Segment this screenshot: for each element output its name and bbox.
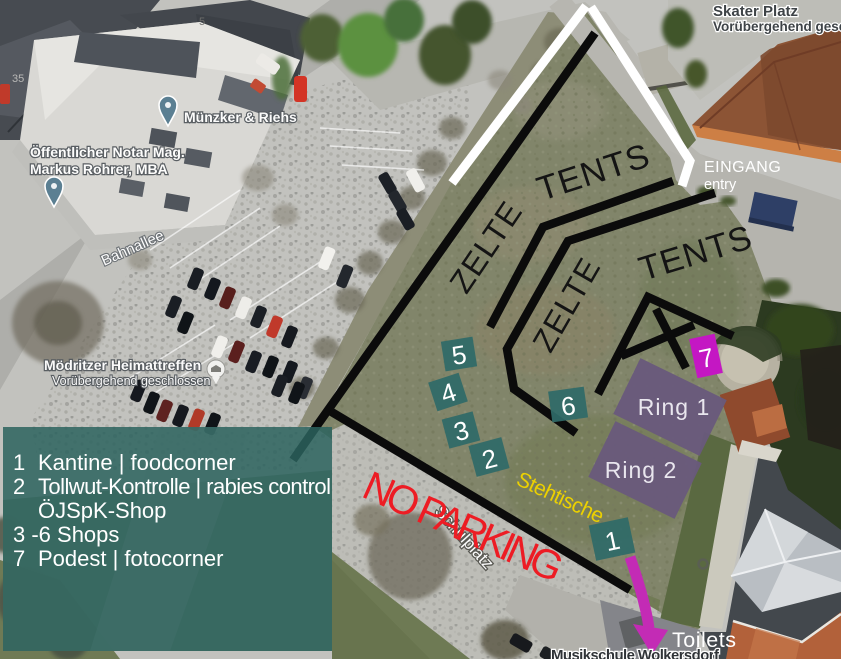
svg-text:1: 1 — [13, 450, 25, 475]
svg-text:Markus Rohrer, MBA: Markus Rohrer, MBA — [30, 161, 168, 177]
svg-text:ÖJSpK-Shop: ÖJSpK-Shop — [38, 498, 166, 523]
svg-text:entry: entry — [704, 177, 737, 193]
svg-text:Münzker & Riehs: Münzker & Riehs — [184, 109, 297, 125]
svg-text:2: 2 — [13, 474, 25, 499]
svg-text:Podest | fotocorner: Podest | fotocorner — [38, 546, 224, 571]
svg-text:Vorübergehend geschlo: Vorübergehend geschlo — [713, 19, 841, 34]
svg-text:Mödritzer Heimattreffen: Mödritzer Heimattreffen — [44, 357, 201, 373]
svg-text:Ring 2: Ring 2 — [605, 457, 677, 483]
svg-text:Musikschule Wolkersdorf: Musikschule Wolkersdorf — [551, 647, 720, 659]
svg-text:Kantine | foodcorner: Kantine | foodcorner — [38, 450, 236, 475]
svg-text:35: 35 — [12, 73, 24, 85]
svg-text:Ring 1: Ring 1 — [638, 394, 710, 420]
svg-text:3 -6 Shops: 3 -6 Shops — [13, 522, 119, 547]
svg-text:Tollwut-Kontrolle | rabies c: Tollwut-Kontrolle | rabies control — [38, 474, 331, 499]
svg-text:Skater Platz: Skater Platz — [713, 3, 798, 20]
svg-text:5: 5 — [199, 16, 205, 28]
svg-text:EINGANG: EINGANG — [704, 159, 781, 176]
svg-text:7: 7 — [13, 546, 25, 571]
svg-text:Vorübergehend geschlossen: Vorübergehend geschlossen — [52, 374, 211, 388]
svg-text:Öffentlicher Notar Mag.: Öffentlicher Notar Mag. — [30, 144, 185, 160]
